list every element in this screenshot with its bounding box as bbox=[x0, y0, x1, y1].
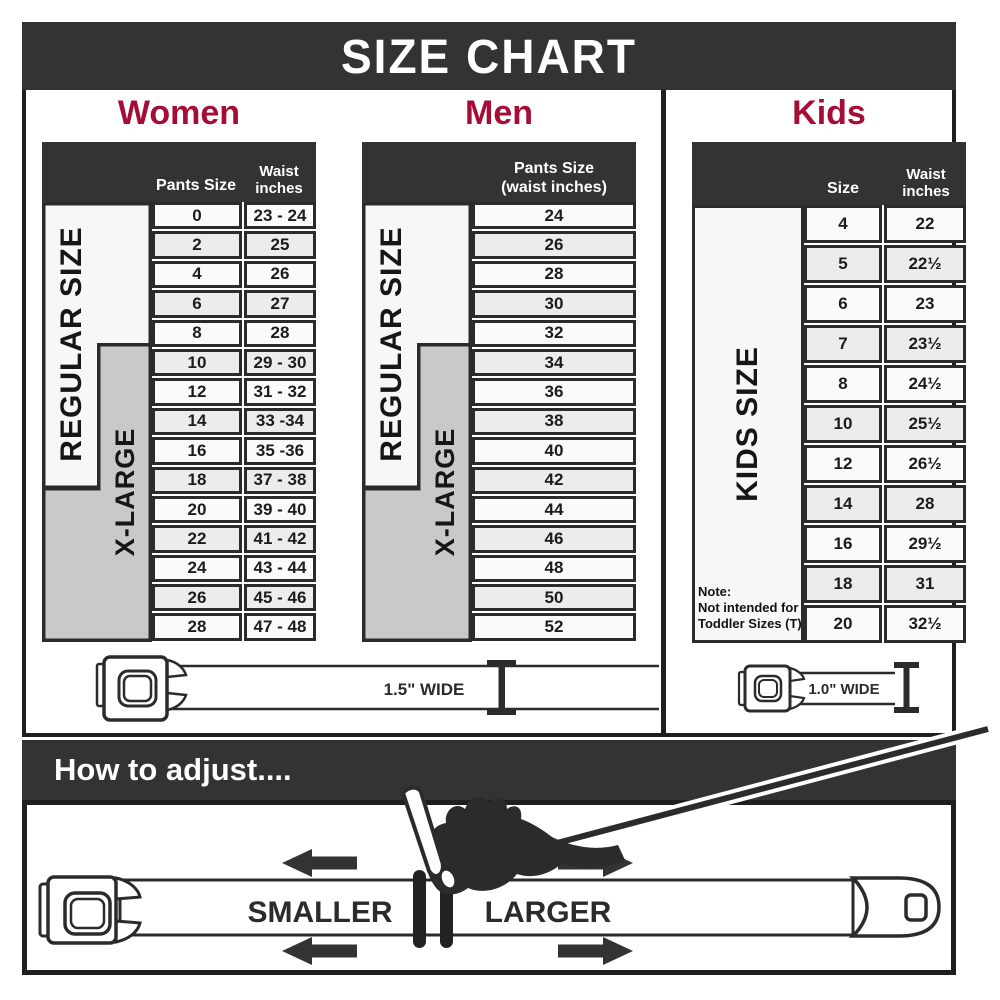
table-row: 26 bbox=[472, 231, 636, 258]
table-row: 48 bbox=[472, 555, 636, 582]
size-cell: 12 bbox=[804, 445, 882, 483]
size-cell: 5 bbox=[804, 245, 882, 283]
waist-cell: 22 bbox=[884, 205, 966, 243]
arrow-left-icon bbox=[282, 937, 357, 965]
table-row: 6 23 bbox=[804, 285, 966, 323]
pants-size-cell: 42 bbox=[472, 467, 636, 494]
how-to-adjust-bar: How to adjust.... bbox=[22, 740, 956, 800]
waist-cell: 33 -34 bbox=[244, 408, 316, 435]
table-row: 40 bbox=[472, 437, 636, 464]
table-row: 44 bbox=[472, 496, 636, 523]
size-cell: 4 bbox=[804, 205, 882, 243]
table-row: 28 47 - 48 bbox=[152, 613, 316, 640]
larger-label: LARGER bbox=[485, 896, 612, 929]
pants-size-cell: 48 bbox=[472, 555, 636, 582]
pants-size-cell: 12 bbox=[152, 378, 242, 405]
waist-cell: 29 - 30 bbox=[244, 349, 316, 376]
waist-cell: 32½ bbox=[884, 605, 966, 643]
table-row: 32 bbox=[472, 320, 636, 347]
waist-cell: 27 bbox=[244, 290, 316, 317]
men-regular-size-label: REGULAR SIZE bbox=[375, 204, 409, 484]
table-row: 22 41 - 42 bbox=[152, 525, 316, 552]
men-table-header: Pants Size (waist inches) bbox=[362, 142, 636, 202]
table-row: 20 39 - 40 bbox=[152, 496, 316, 523]
kids-col1-header: Size bbox=[802, 180, 884, 198]
size-cell: 7 bbox=[804, 325, 882, 363]
pants-size-cell: 16 bbox=[152, 437, 242, 464]
pants-size-cell: 24 bbox=[152, 555, 242, 582]
table-row: 6 27 bbox=[152, 290, 316, 317]
table-row: 42 bbox=[472, 467, 636, 494]
kids-size-label: KIDS SIZE bbox=[731, 304, 765, 544]
waist-cell: 35 -36 bbox=[244, 437, 316, 464]
pants-size-cell: 38 bbox=[472, 408, 636, 435]
waist-cell: 41 - 42 bbox=[244, 525, 316, 552]
kids-col2-header: Waist inches bbox=[886, 166, 966, 200]
table-row: 24 43 - 44 bbox=[152, 555, 316, 582]
arrow-right-icon bbox=[558, 937, 633, 965]
pants-size-cell: 20 bbox=[152, 496, 242, 523]
page-title: SIZE CHART bbox=[341, 28, 637, 85]
table-row: 26 45 - 46 bbox=[152, 584, 316, 611]
pants-size-cell: 28 bbox=[152, 613, 242, 640]
waist-cell: 43 - 44 bbox=[244, 555, 316, 582]
pants-size-cell: 28 bbox=[472, 261, 636, 288]
men-table-rows: 24 26 28 30 32 34 36 38 40 42 44 46 bbox=[472, 202, 636, 641]
table-row: 8 28 bbox=[152, 320, 316, 347]
table-row: 34 bbox=[472, 349, 636, 376]
table-row: 12 26½ bbox=[804, 445, 966, 483]
table-row: 12 31 - 32 bbox=[152, 378, 316, 405]
size-cell: 14 bbox=[804, 485, 882, 523]
women-regular-size-label: REGULAR SIZE bbox=[55, 204, 89, 484]
pants-size-cell: 10 bbox=[152, 349, 242, 376]
waist-cell: 26½ bbox=[884, 445, 966, 483]
waist-cell: 23 - 24 bbox=[244, 202, 316, 229]
pants-size-cell: 22 bbox=[152, 525, 242, 552]
table-row: 52 bbox=[472, 613, 636, 640]
waist-cell: 25½ bbox=[884, 405, 966, 443]
table-row: 10 29 - 30 bbox=[152, 349, 316, 376]
waist-cell: 24½ bbox=[884, 365, 966, 403]
kids-section-title: Kids bbox=[692, 94, 966, 134]
waist-cell: 26 bbox=[244, 261, 316, 288]
women-table-rows: 0 23 - 24 2 25 4 26 6 27 8 28 10 29 - 30… bbox=[152, 202, 316, 641]
women-xlarge-label: X-LARGE bbox=[110, 382, 140, 602]
waist-cell: 25 bbox=[244, 231, 316, 258]
table-row: 46 bbox=[472, 525, 636, 552]
table-row: 4 22 bbox=[804, 205, 966, 243]
pants-size-cell: 52 bbox=[472, 613, 636, 640]
size-cell: 16 bbox=[804, 525, 882, 563]
table-row: 7 23½ bbox=[804, 325, 966, 363]
pants-size-cell: 8 bbox=[152, 320, 242, 347]
pants-size-cell: 40 bbox=[472, 437, 636, 464]
pants-size-cell: 14 bbox=[152, 408, 242, 435]
table-row: 14 33 -34 bbox=[152, 408, 316, 435]
table-row: 0 23 - 24 bbox=[152, 202, 316, 229]
adjust-illustration-box: SMALLER LARGER bbox=[22, 800, 956, 975]
men-section-title: Men bbox=[362, 94, 636, 134]
pants-size-cell: 24 bbox=[472, 202, 636, 229]
table-row: 4 26 bbox=[152, 261, 316, 288]
belt-width-label: 1.0" WIDE bbox=[808, 681, 879, 698]
pants-size-cell: 36 bbox=[472, 378, 636, 405]
pants-size-cell: 0 bbox=[152, 202, 242, 229]
table-row: 16 35 -36 bbox=[152, 437, 316, 464]
size-chart-page: SIZE CHART Women Pants Size Waist inches… bbox=[0, 0, 1000, 1000]
table-row: 30 bbox=[472, 290, 636, 317]
pants-size-cell: 4 bbox=[152, 261, 242, 288]
table-row: 18 31 bbox=[804, 565, 966, 603]
table-row: 18 37 - 38 bbox=[152, 467, 316, 494]
kids-belt-illustration: 1.0" WIDE bbox=[692, 650, 982, 730]
pants-size-cell: 6 bbox=[152, 290, 242, 317]
table-row: 20 32½ bbox=[804, 605, 966, 643]
waist-cell: 47 - 48 bbox=[244, 613, 316, 640]
pants-size-cell: 18 bbox=[152, 467, 242, 494]
pants-size-cell: 26 bbox=[152, 584, 242, 611]
size-cell: 6 bbox=[804, 285, 882, 323]
pants-size-cell: 34 bbox=[472, 349, 636, 376]
pants-size-cell: 50 bbox=[472, 584, 636, 611]
waist-cell: 23 bbox=[884, 285, 966, 323]
waist-cell: 39 - 40 bbox=[244, 496, 316, 523]
pants-size-cell: 26 bbox=[472, 231, 636, 258]
table-row: 14 28 bbox=[804, 485, 966, 523]
size-chart-banner: SIZE CHART bbox=[22, 22, 956, 90]
size-cell: 20 bbox=[804, 605, 882, 643]
smaller-label: SMALLER bbox=[248, 896, 393, 929]
table-row: 10 25½ bbox=[804, 405, 966, 443]
kids-table-header: Size Waist inches bbox=[692, 142, 966, 205]
waist-cell: 28 bbox=[244, 320, 316, 347]
table-row: 2 25 bbox=[152, 231, 316, 258]
width-gauge-icon bbox=[894, 662, 919, 713]
belt-adjust-illustration: SMALLER LARGER bbox=[27, 805, 951, 970]
women-section-title: Women bbox=[42, 94, 316, 134]
waist-cell: 22½ bbox=[884, 245, 966, 283]
pants-size-cell: 46 bbox=[472, 525, 636, 552]
arrow-right-icon bbox=[558, 849, 633, 877]
table-row: 28 bbox=[472, 261, 636, 288]
women-col1-header: Pants Size bbox=[150, 177, 242, 195]
waist-cell: 23½ bbox=[884, 325, 966, 363]
size-cell: 18 bbox=[804, 565, 882, 603]
men-xlarge-label: X-LARGE bbox=[430, 382, 460, 602]
arrow-left-icon bbox=[282, 849, 357, 877]
kids-table-rows: 4 22 5 22½ 6 23 7 23½ 8 24½ 10 25½ 12 26… bbox=[804, 205, 966, 643]
belt-width-label: 1.5" WIDE bbox=[384, 680, 465, 699]
waist-cell: 28 bbox=[884, 485, 966, 523]
adult-belt-illustration: 1.5" WIDE bbox=[42, 650, 662, 730]
table-row: 24 bbox=[472, 202, 636, 229]
pants-size-cell: 32 bbox=[472, 320, 636, 347]
women-col2-header: Waist inches bbox=[242, 163, 316, 197]
waist-cell: 29½ bbox=[884, 525, 966, 563]
how-to-adjust-title: How to adjust.... bbox=[22, 752, 292, 788]
table-row: 38 bbox=[472, 408, 636, 435]
waist-cell: 37 - 38 bbox=[244, 467, 316, 494]
table-row: 5 22½ bbox=[804, 245, 966, 283]
size-cell: 8 bbox=[804, 365, 882, 403]
table-row: 16 29½ bbox=[804, 525, 966, 563]
waist-cell: 45 - 46 bbox=[244, 584, 316, 611]
pants-size-cell: 2 bbox=[152, 231, 242, 258]
women-table-header: Pants Size Waist inches bbox=[42, 142, 316, 202]
kids-note: Note: Not intended for Toddler Sizes (T) bbox=[698, 584, 802, 632]
size-tables-panel: Women Pants Size Waist inches REGULAR SI… bbox=[22, 90, 956, 737]
panel-divider bbox=[661, 90, 666, 733]
table-row: 50 bbox=[472, 584, 636, 611]
table-row: 36 bbox=[472, 378, 636, 405]
men-col-header: Pants Size (waist inches) bbox=[472, 159, 636, 197]
table-row: 8 24½ bbox=[804, 365, 966, 403]
size-cell: 10 bbox=[804, 405, 882, 443]
waist-cell: 31 - 32 bbox=[244, 378, 316, 405]
pants-size-cell: 44 bbox=[472, 496, 636, 523]
pants-size-cell: 30 bbox=[472, 290, 636, 317]
waist-cell: 31 bbox=[884, 565, 966, 603]
